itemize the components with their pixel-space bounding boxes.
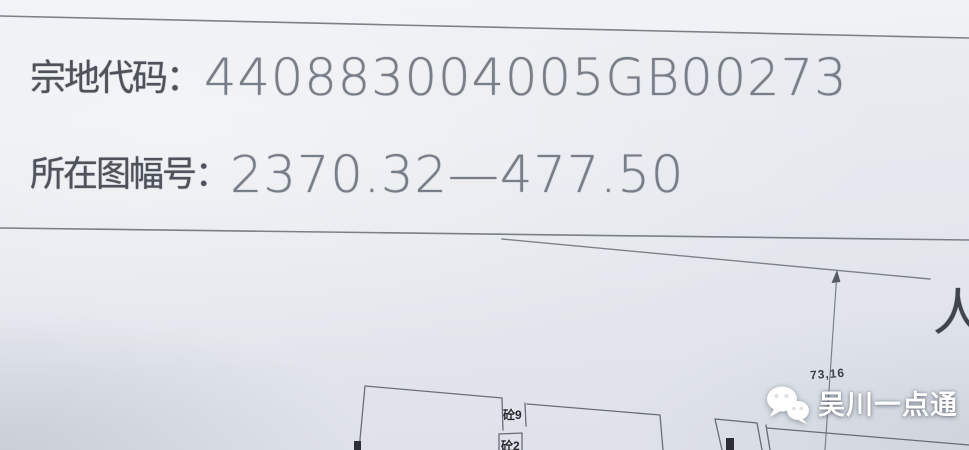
parcel-code-value: 440883004005GB00273 [204,53,848,104]
building-outline-right [660,415,663,450]
building-box-b [715,419,762,450]
building-label-2: 砼2 [501,440,520,450]
boundary-marker-1 [354,441,361,450]
watermark-text: 吴川一点通 [818,392,958,419]
road-name-character: 人 [933,288,969,338]
building-box-c-top [767,428,969,445]
building-notch-tick-right [525,403,526,426]
document-photo: 宗地代码： 440883004005GB00273 所在图幅号： 2370.32… [0,0,969,450]
building-outline-top-right [527,404,660,415]
map-sheet-label: 所在图幅号： [30,157,228,192]
dimension-text: 73,16 [810,367,846,381]
parcel-code-label: 宗地代码： [30,60,200,96]
boundary-marker-2 [726,438,734,450]
wechat-icon [765,384,811,426]
map-sheet-value: 2370.32—477.50 [230,150,684,201]
building-outline-left [359,386,365,450]
watermark: 吴川一点通 [765,384,958,426]
boundary-diagonal-line [502,239,930,279]
building-outline-top-left [365,386,502,398]
dimension-arrow [832,270,841,283]
building-label-9: 砼9 [503,409,522,421]
header-box-bottom-line [0,228,969,240]
